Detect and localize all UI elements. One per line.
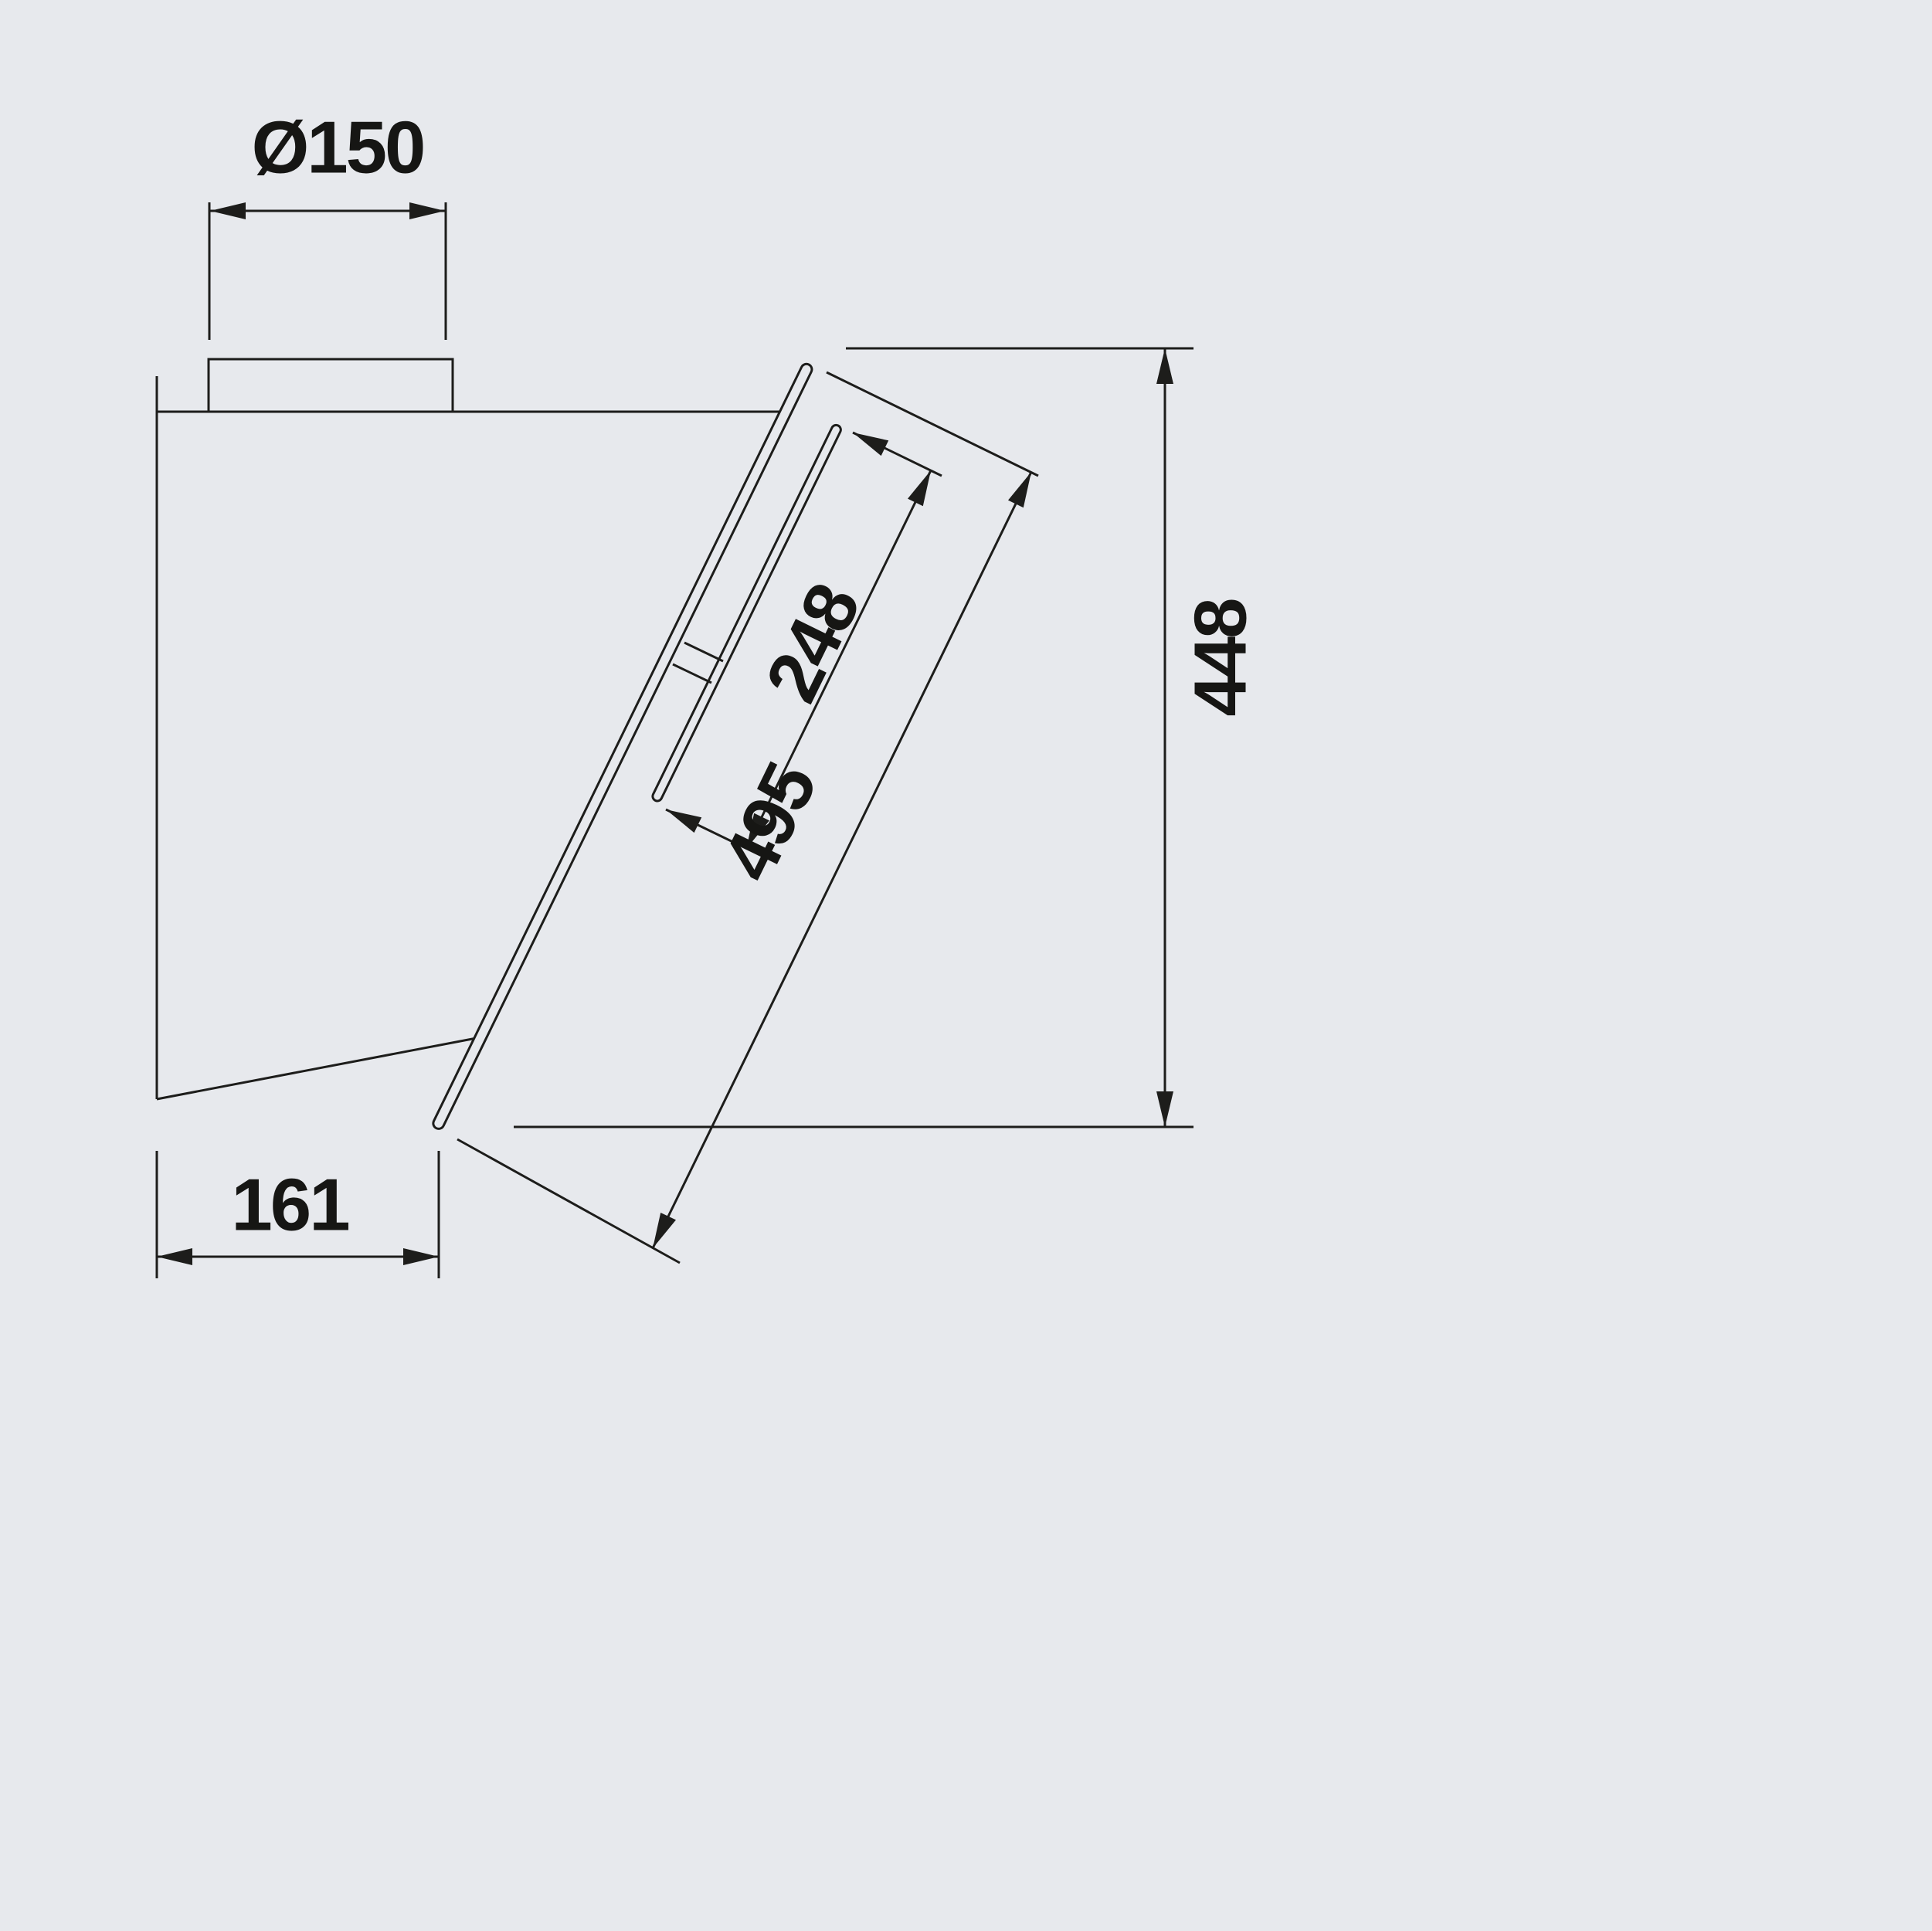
leader-arrowhead-bottom-icon: [666, 809, 701, 833]
hood-body-bottom-edge: [157, 1037, 480, 1099]
arrowhead-right-icon: [403, 1248, 439, 1265]
dimension-front-panel-length: 495: [457, 372, 1038, 1263]
extension-line-bottom: [457, 1139, 680, 1263]
front-glass-panel: [432, 362, 814, 1131]
dimension-line: [653, 472, 1031, 1248]
panel-bracket-lower: [673, 664, 711, 683]
dimension-label-inner-panel-length: 248: [750, 572, 876, 714]
arrowhead-left-icon: [157, 1248, 192, 1265]
drawing-page: Ø150 248 495 448 161: [0, 0, 1932, 1931]
arrowhead-left-icon: [210, 202, 246, 219]
technical-drawing-canvas: Ø150 248 495 448 161: [0, 0, 1932, 1931]
panel-bracket-upper: [684, 643, 723, 661]
arrowhead-top-icon: [1008, 472, 1031, 507]
dimension-label-body-depth: 161: [231, 1164, 348, 1247]
exhaust-duct: [209, 359, 453, 412]
arrowhead-bottom-icon: [653, 1213, 676, 1248]
dimension-duct-diameter: Ø150: [209, 107, 446, 341]
leader-arrowhead-top-icon: [853, 433, 888, 456]
arrowhead-top-icon: [1156, 348, 1173, 384]
arrowhead-bottom-icon: [1156, 1091, 1173, 1127]
dimension-label-overall-height: 448: [1180, 599, 1262, 717]
arrowhead-right-icon: [409, 202, 445, 219]
dimension-body-depth: 161: [157, 1151, 439, 1278]
arrowhead-top-icon: [908, 470, 931, 506]
dimension-label-front-panel-length: 495: [707, 752, 833, 893]
dimension-label-duct-diameter: Ø150: [252, 107, 424, 189]
extension-line-top: [827, 372, 1038, 476]
